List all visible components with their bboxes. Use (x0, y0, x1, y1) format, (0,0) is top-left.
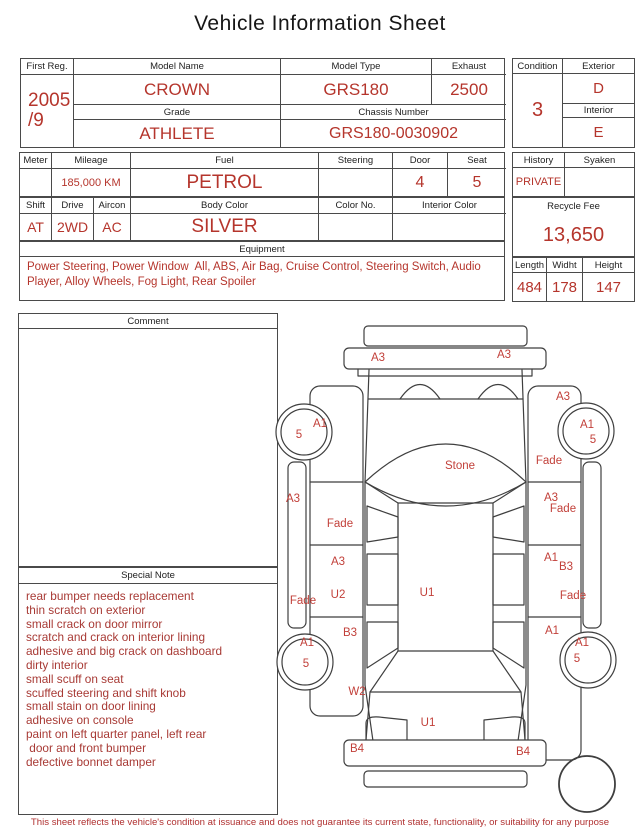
damage-label-fade: Fade (536, 455, 562, 467)
meter-label: Meter (20, 153, 52, 169)
exterior-label: Exterior (563, 59, 634, 74)
damage-label-stone: Stone (445, 460, 475, 472)
damage-label-fade: Fade (290, 595, 316, 607)
seat-label: Seat (448, 153, 506, 169)
drive-label: Drive (52, 198, 94, 214)
grade-label: Grade (74, 105, 281, 120)
exhaust-label: Exhaust (432, 59, 506, 75)
front-trim-strip (364, 326, 527, 346)
fuel-value: PETROL (131, 169, 319, 196)
interior-value: E (563, 118, 634, 147)
car-damage-diagram: A3A3StoneA15A3A15FadeA3FadeA3FadeA3U2U1A… (270, 310, 640, 815)
recycle-fee-box: Recycle Fee 13,650 (512, 197, 635, 257)
damage-label-b3: B3 (343, 627, 357, 639)
special-note-line: adhesive on console (26, 714, 273, 728)
damage-label-a1: A1 (575, 637, 589, 649)
grade-value: ATHLETE (74, 120, 281, 147)
wheels (276, 403, 616, 690)
special-note-line: thin scratch on exterior (26, 604, 273, 618)
mileage-value: 185,000 KM (52, 169, 131, 196)
height-label: Height (583, 258, 634, 273)
damage-label-a3: A3 (331, 556, 345, 568)
damage-label-b3: B3 (559, 561, 573, 573)
history-label: History (513, 153, 564, 168)
damage-label-a3: A3 (371, 352, 385, 364)
damage-label-a1: A1 (300, 637, 314, 649)
comment-label: Comment (19, 314, 277, 329)
condition-column: Condition 3 (513, 59, 563, 147)
special-note-line: paint on left quarter panel, left rear (26, 728, 273, 742)
damage-label-a1: A1 (580, 419, 594, 431)
condition-label: Condition (513, 59, 562, 74)
special-note-line: rear bumper needs replacement (26, 590, 273, 604)
history-box: History PRIVATE Syaken (512, 152, 635, 197)
first-reg-value: 2005 /9 (21, 75, 74, 147)
exhaust-value: 2500 (432, 75, 506, 105)
interior-color-label: Interior Color (393, 198, 506, 214)
height-value: 147 (583, 273, 634, 301)
car-body-outline (365, 370, 526, 741)
damage-label-a1: A1 (544, 552, 558, 564)
seat-value: 5 (448, 169, 506, 196)
history-value: PRIVATE (513, 168, 564, 196)
steering-value (319, 169, 393, 196)
damage-label-u1: U1 (420, 587, 435, 599)
equipment-label: Equipment (20, 242, 504, 257)
damage-label-5: 5 (296, 429, 302, 441)
door-value: 4 (393, 169, 448, 196)
aircon-value: AC (94, 214, 131, 240)
width-label: Widht (547, 258, 583, 273)
damage-label-5: 5 (590, 434, 596, 446)
damage-label-b4: B4 (350, 743, 365, 755)
page-title: Vehicle Information Sheet (0, 12, 640, 36)
door-label: Door (393, 153, 448, 169)
syaken-label: Syaken (565, 153, 634, 168)
special-note-label: Special Note (19, 568, 277, 584)
damage-label-a1: A1 (545, 625, 559, 637)
condition-value: 3 (513, 74, 562, 147)
first-reg-month: /9 (28, 111, 73, 131)
damage-label-fade: Fade (550, 503, 576, 515)
grade-column: Exterior D Interior E (563, 59, 634, 147)
special-note-line: small crack on door mirror (26, 618, 273, 632)
damage-label-a3: A3 (286, 493, 300, 505)
special-note-line: defective bonnet damper (26, 756, 273, 770)
damage-label-a3: A3 (497, 349, 511, 361)
length-label: Length (513, 258, 547, 273)
mileage-label: Mileage (52, 153, 131, 169)
damage-label-u1: U1 (421, 717, 436, 729)
model-info-table: First Reg. Model Name Model Type Exhaust… (20, 58, 505, 148)
color-no-label: Color No. (319, 198, 393, 214)
damage-label-a3: A3 (556, 391, 570, 403)
shift-value: AT (20, 214, 52, 240)
special-note-line: small scuff on seat (26, 673, 273, 687)
drive-value: 2WD (52, 214, 94, 240)
damage-label-u2: U2 (331, 589, 346, 601)
damage-label-5: 5 (303, 658, 309, 670)
special-note-line: dirty interior (26, 659, 273, 673)
body-color-label: Body Color (131, 198, 319, 214)
body-color-value: SILVER (131, 214, 319, 240)
recycle-fee-label: Recycle Fee (513, 198, 634, 214)
special-note-line: adhesive and big crack on dashboard (26, 645, 273, 659)
special-note-line: small stain on door lining (26, 700, 273, 714)
equipment-value: Power Steering, Power Window All, ABS, A… (20, 257, 504, 289)
interior-color-value (393, 214, 506, 240)
disclaimer-text: This sheet reflects the vehicle's condit… (0, 817, 640, 828)
recycle-fee-value: 13,650 (513, 214, 634, 256)
damage-label-fade: Fade (327, 518, 353, 530)
model-type-label: Model Type (281, 59, 432, 75)
model-name-label: Model Name (74, 59, 281, 75)
comment-box: Comment (18, 313, 278, 567)
special-note-line: door and front bumper (26, 742, 273, 756)
chassis-number-value: GRS180-0030902 (281, 120, 506, 147)
special-note-line: scratch and crack on interior lining (26, 631, 273, 645)
special-note-lines: rear bumper needs replacementthin scratc… (19, 584, 277, 769)
syaken-column: Syaken (565, 153, 634, 196)
special-note-box: Special Note rear bumper needs replaceme… (18, 567, 278, 815)
meter-value (20, 169, 52, 196)
syaken-value (565, 168, 634, 196)
model-name-value: CROWN (74, 75, 281, 105)
damage-label-5: 5 (574, 653, 580, 665)
fuel-label: Fuel (131, 153, 319, 169)
mileage-table: Meter Mileage Fuel Steering Door Seat 18… (19, 152, 505, 197)
damage-label-w2: W2 (348, 686, 365, 698)
special-note-line: scuffed steering and shift knob (26, 687, 273, 701)
color-no-value (319, 214, 393, 240)
spare-tire-circle (559, 756, 615, 812)
history-column: History PRIVATE (513, 153, 565, 196)
interior-label: Interior (563, 104, 634, 118)
vehicle-information-sheet: Vehicle Information Sheet First Reg. Mod… (0, 0, 640, 835)
car-diagram-labels: A3A3StoneA15A3A15FadeA3FadeA3FadeA3U2U1A… (286, 349, 596, 758)
drivetrain-table: Shift Drive Aircon Body Color Color No. … (19, 197, 505, 241)
dimensions-box: Length Widht Height 484 178 147 (512, 257, 635, 302)
damage-label-a1: A1 (313, 418, 327, 430)
shift-label: Shift (20, 198, 52, 214)
aircon-label: Aircon (94, 198, 131, 214)
model-type-value: GRS180 (281, 75, 432, 105)
first-reg-label: First Reg. (21, 59, 74, 75)
length-value: 484 (513, 273, 547, 301)
condition-box: Condition 3 Exterior D Interior E (512, 58, 635, 148)
chassis-number-label: Chassis Number (281, 105, 506, 120)
steering-label: Steering (319, 153, 393, 169)
damage-label-fade: Fade (560, 590, 586, 602)
exterior-value: D (563, 74, 634, 104)
first-reg-year: 2005 (28, 91, 73, 111)
equipment-box: Equipment Power Steering, Power Window A… (19, 241, 505, 301)
damage-label-b4: B4 (516, 746, 531, 758)
width-value: 178 (547, 273, 583, 301)
